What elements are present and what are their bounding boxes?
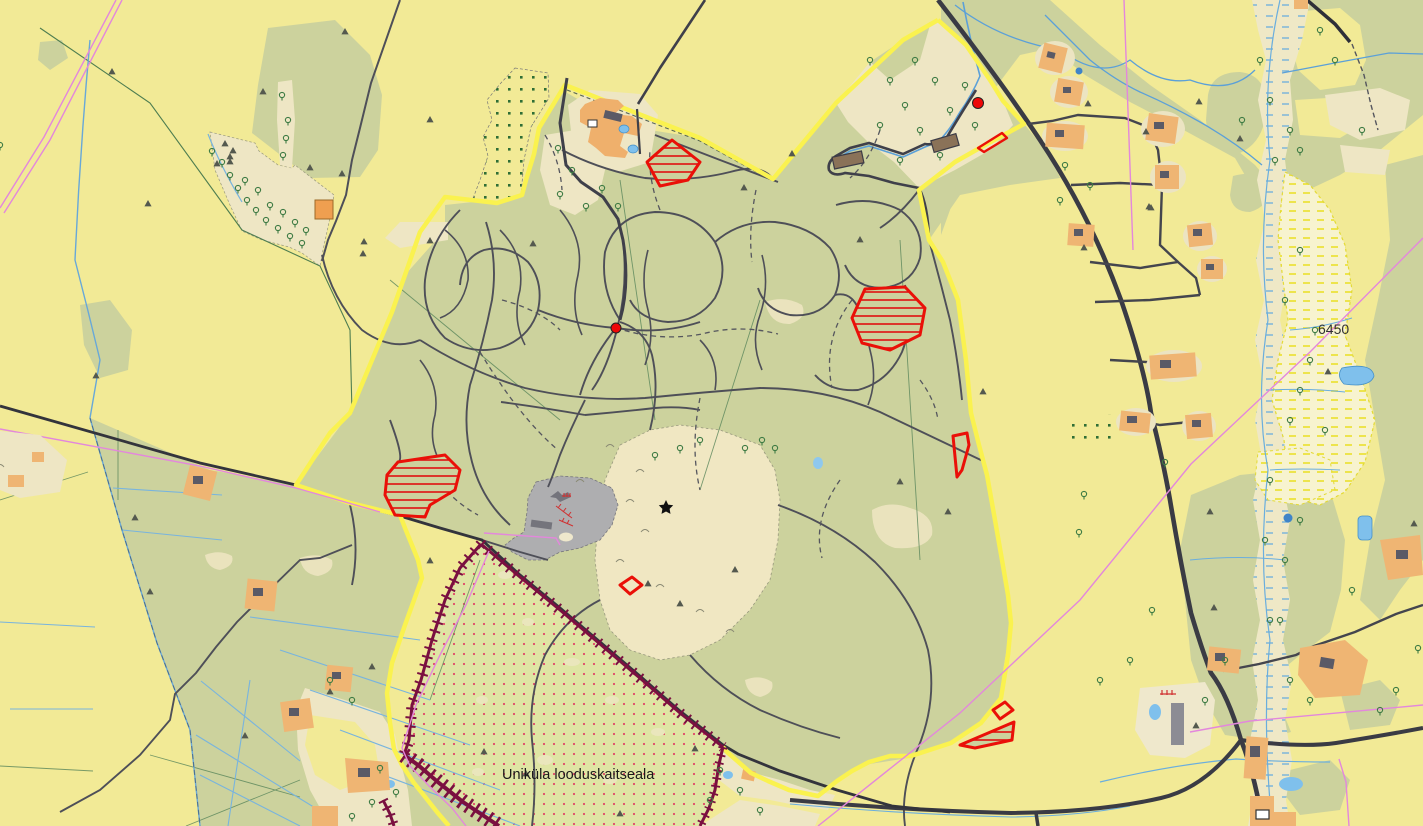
- svg-text:Uniküla looduskaitseala: Uniküla looduskaitseala: [502, 767, 655, 783]
- svg-text:6450: 6450: [1318, 321, 1349, 337]
